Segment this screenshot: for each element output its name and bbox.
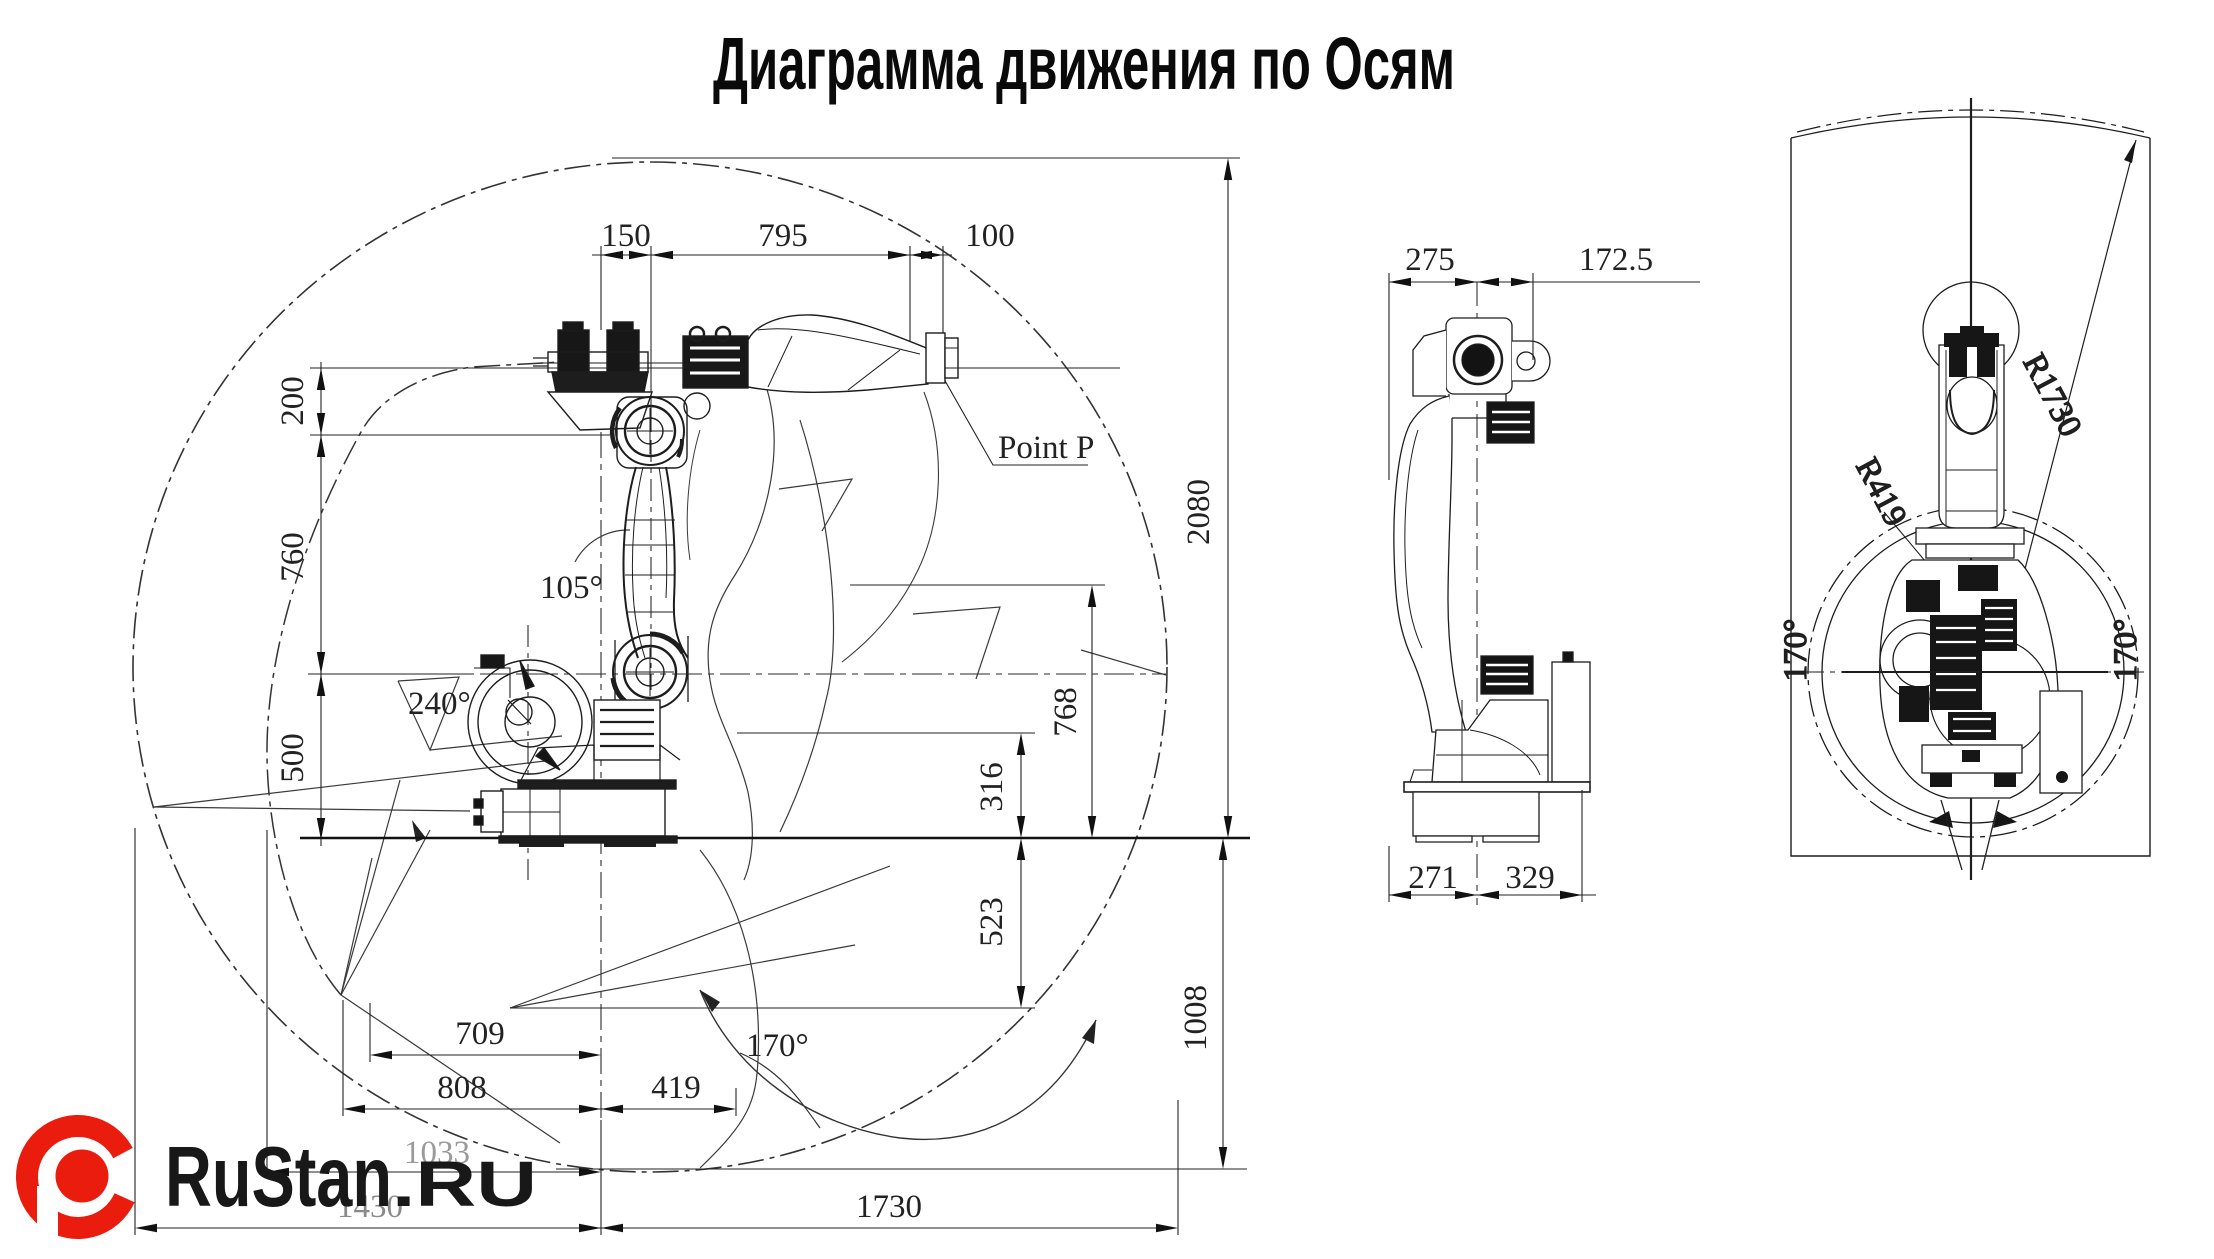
svg-text:100: 100	[965, 218, 1015, 254]
svg-text:275: 275	[1405, 242, 1455, 278]
svg-text:Point P: Point P	[998, 430, 1094, 466]
svg-text:316: 316	[974, 762, 1010, 812]
svg-text:808: 808	[437, 1070, 487, 1106]
svg-text:1730: 1730	[856, 1189, 922, 1225]
svg-text:170°: 170°	[1778, 619, 1814, 682]
svg-text:1008: 1008	[1178, 985, 1214, 1051]
svg-text:2080: 2080	[1181, 479, 1217, 545]
svg-text:795: 795	[758, 218, 808, 254]
svg-text:105°: 105°	[540, 570, 603, 606]
svg-text:.RU: .RU	[392, 1148, 537, 1220]
svg-text:200: 200	[275, 376, 311, 426]
svg-text:271: 271	[1408, 860, 1458, 896]
svg-text:240°: 240°	[408, 686, 471, 722]
svg-text:329: 329	[1505, 860, 1555, 896]
svg-text:523: 523	[974, 897, 1010, 947]
svg-text:760: 760	[275, 532, 311, 582]
svg-text:709: 709	[455, 1016, 505, 1052]
svg-text:172.5: 172.5	[1579, 242, 1653, 278]
svg-text:170°: 170°	[746, 1028, 809, 1064]
svg-text:768: 768	[1048, 687, 1084, 737]
svg-text:170°: 170°	[2108, 619, 2144, 682]
svg-text:RuStan: RuStan	[165, 1130, 392, 1225]
svg-text:419: 419	[651, 1070, 701, 1106]
svg-text:Диаграмма движения по Осям: Диаграмма движения по Осям	[713, 22, 1455, 105]
svg-text:150: 150	[601, 218, 651, 254]
svg-text:500: 500	[275, 733, 311, 783]
